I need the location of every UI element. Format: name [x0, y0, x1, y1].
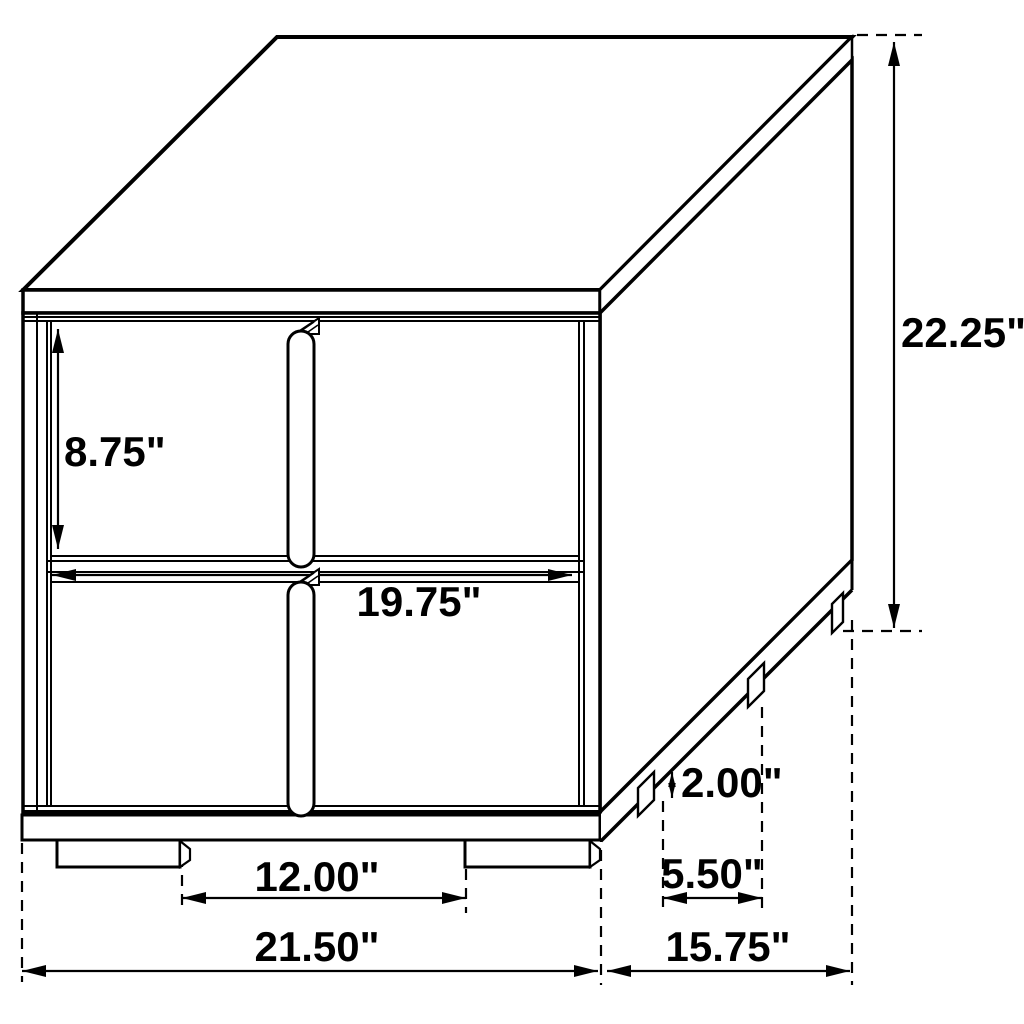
front-leg-right-side	[590, 841, 600, 867]
overall-width-label: 21.50"	[254, 923, 379, 970]
upper-drawer-handle	[288, 331, 314, 567]
drawer-height-label: 8.75"	[64, 428, 166, 475]
front-leg-spacing-label: 12.00"	[254, 853, 379, 900]
front-leg-left-side	[180, 841, 190, 867]
front-leg-left	[57, 840, 180, 867]
nightstand-dimension-diagram: 22.25" 8.75" 19.75" 2.00" 5.50" 12.00" 2…	[0, 0, 1024, 1024]
leg-height-label: 2.00"	[681, 759, 783, 806]
front-leg-right	[465, 840, 590, 867]
lower-drawer-handle	[288, 582, 314, 816]
overall-depth-label: 15.75"	[665, 923, 790, 970]
diagram-svg: 22.25" 8.75" 19.75" 2.00" 5.50" 12.00" 2…	[0, 0, 1024, 1024]
top-panel-front-edge	[23, 290, 600, 313]
side-leg-spacing-label: 5.50"	[661, 850, 763, 897]
front-plinth-rail	[22, 815, 600, 840]
overall-height-label: 22.25"	[901, 309, 1024, 356]
drawer-width-label: 19.75"	[356, 578, 481, 625]
